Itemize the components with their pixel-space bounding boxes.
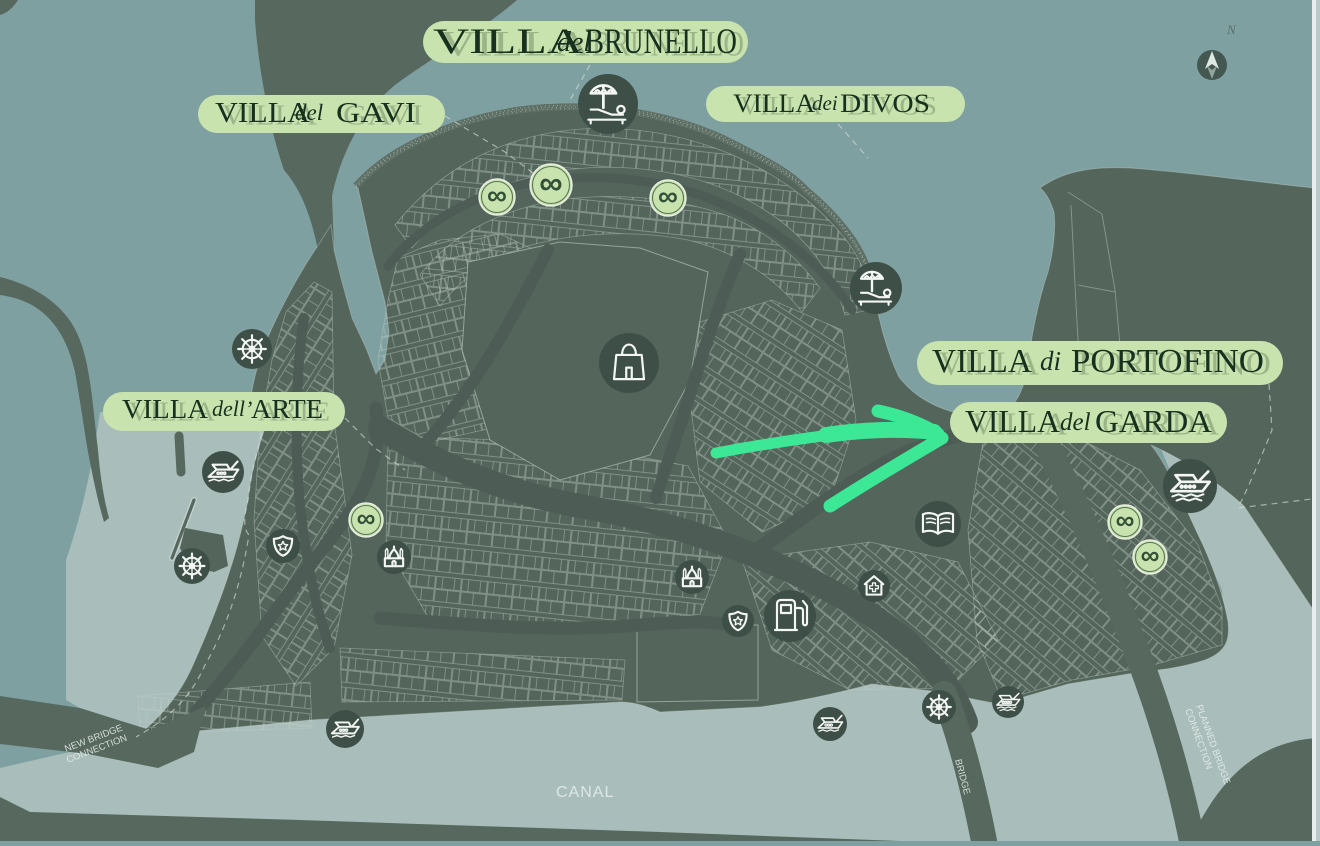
svg-text:ARTE: ARTE [251,394,323,424]
svg-text:del: del [1060,409,1091,436]
svg-text:VILLA: VILLA [733,89,815,118]
svg-text:GARDA: GARDA [1095,403,1212,439]
svg-text:∞: ∞ [1141,540,1160,570]
svg-text:DIVOS: DIVOS [840,89,930,118]
svg-text:VILLA: VILLA [122,394,209,424]
svg-text:∞: ∞ [357,503,376,533]
svg-text:PORTOFINO: PORTOFINO [1071,343,1264,380]
svg-text:∞: ∞ [487,180,507,211]
svg-text:GAVI: GAVI [336,97,416,129]
svg-text:CANAL: CANAL [556,784,614,801]
svg-text:dei: dei [812,91,838,115]
svg-text:BRUNELLO: BRUNELLO [585,21,737,61]
svg-text:N: N [1226,22,1237,37]
svg-text:∞: ∞ [539,165,562,201]
svg-text:dell’: dell’ [212,396,252,421]
svg-text:VILLA: VILLA [965,403,1060,439]
svg-text:∞: ∞ [1116,505,1135,535]
svg-text:∞: ∞ [658,181,678,212]
svg-text:VILLA: VILLA [932,343,1032,380]
svg-text:di: di [1040,346,1061,376]
svg-text:del: del [295,100,323,125]
